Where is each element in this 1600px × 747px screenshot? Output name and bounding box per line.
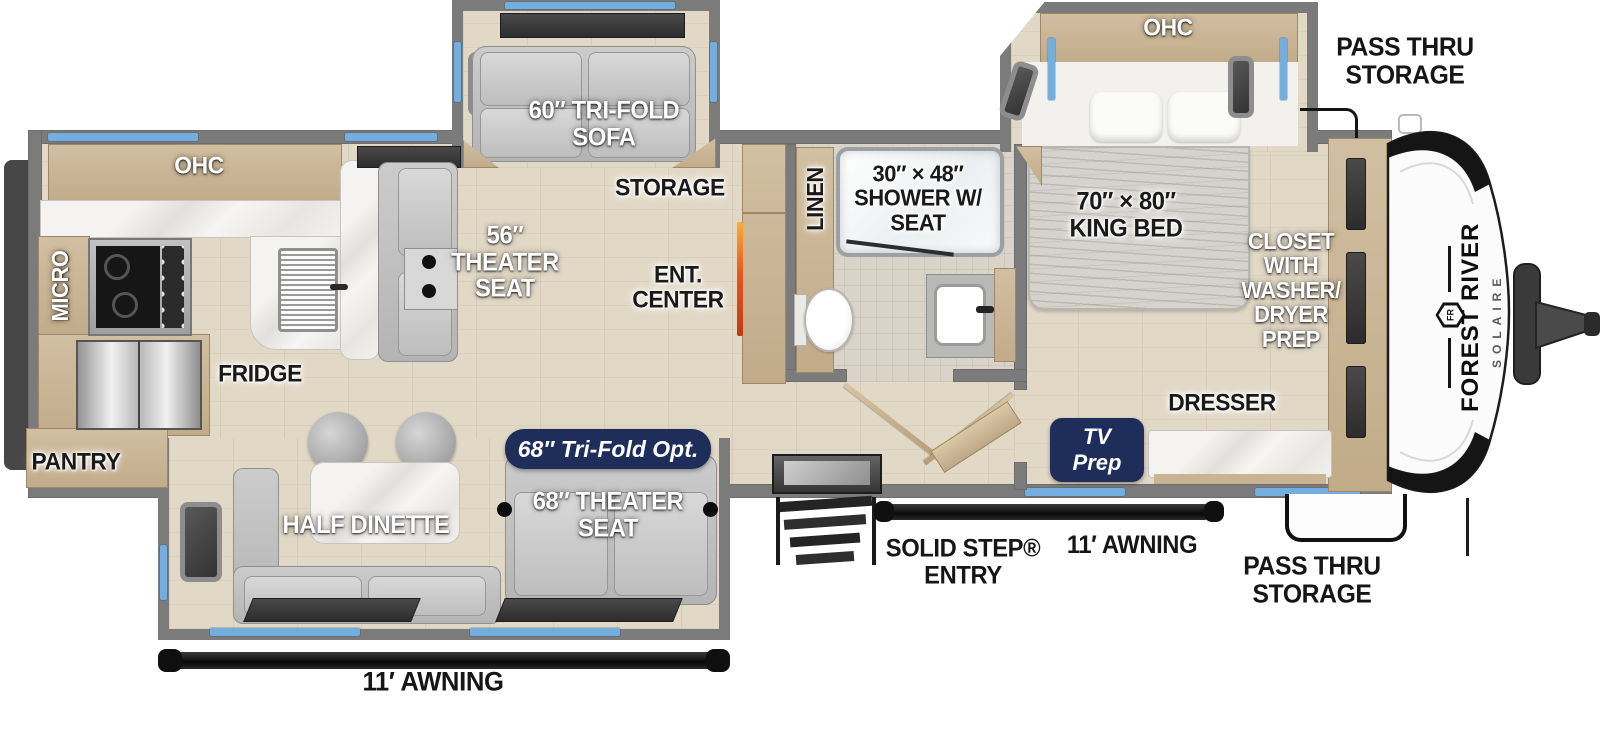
tri-fold-option-badge: 68″ Tri-Fold Opt.	[505, 429, 711, 469]
bath-vanity-panel	[994, 268, 1016, 362]
footrest	[495, 598, 683, 622]
bedroom-slide-window	[1228, 56, 1254, 118]
awning-end-cap	[158, 649, 182, 672]
sofa-tv	[500, 13, 685, 38]
window-strip	[160, 545, 167, 600]
label-dresser: DRESSER	[1168, 390, 1276, 415]
window-strip	[48, 133, 198, 141]
fridge-door-split	[138, 340, 140, 430]
awning-end-cap	[1204, 501, 1224, 522]
kitchen-sink	[278, 248, 338, 332]
closet-door-panel	[1346, 158, 1366, 230]
pillow	[1090, 92, 1162, 142]
tv-prep-text: TV Prep	[1073, 424, 1122, 477]
stove-burner	[104, 254, 130, 280]
window-strip	[454, 42, 461, 102]
brand-rule	[1448, 338, 1451, 388]
window-strip	[1025, 488, 1125, 496]
window-strip	[710, 42, 717, 102]
label-theater-68: 68″ THEATER SEAT	[533, 489, 684, 542]
label-fridge: FRIDGE	[218, 361, 302, 386]
bathroom-sink	[934, 284, 986, 346]
bath-wall-right-lower	[1014, 462, 1027, 490]
kitchen-faucet	[330, 284, 348, 290]
label-ent-center: ENT. CENTER	[632, 263, 723, 314]
stove-knob-panel	[162, 246, 184, 328]
bath-wall-bottom	[953, 369, 1027, 382]
toilet	[804, 288, 854, 352]
floorplan-canvas: FOREST RIVER SOLAIRE FR 68″ Tri-Fold Opt…	[0, 0, 1600, 747]
awning-end-cap	[706, 649, 730, 672]
ent-center-shelf-line	[742, 212, 786, 214]
label-ohc-bedroom: OHC	[1143, 15, 1193, 40]
bath-faucet	[976, 306, 994, 313]
fireplace-strip	[737, 222, 743, 336]
cupholder	[422, 255, 436, 269]
window-strip	[1048, 38, 1055, 100]
label-half-dinette: HALF DINETTE	[283, 512, 450, 539]
label-tri-fold-sofa: 60″ TRI-FOLD SOFA	[529, 98, 680, 151]
label-pantry: PANTRY	[32, 449, 121, 474]
label-awning-bottom: 11′ AWNING	[362, 668, 503, 697]
cupholder	[703, 502, 718, 517]
ent-center-cabinet	[742, 144, 786, 384]
window-strip	[1280, 38, 1287, 100]
label-pass-thru-storage-front: PASS THRU STORAGE	[1336, 33, 1473, 88]
footrest	[243, 598, 421, 622]
label-solid-step-entry: SOLID STEP® ENTRY	[886, 536, 1041, 589]
awning-bar-right	[882, 504, 1212, 520]
window-strip	[210, 628, 360, 636]
window-strip	[505, 2, 675, 9]
brand-solaire: SOLAIRE	[1488, 235, 1506, 405]
dinette-slide-window	[180, 502, 222, 582]
entry-steps	[776, 497, 876, 567]
dresser	[1148, 430, 1332, 478]
entry-door-glass	[784, 461, 870, 485]
rear-cap	[4, 160, 30, 470]
brand-rule	[1448, 246, 1451, 292]
cupholder	[422, 284, 436, 298]
label-micro: MICRO	[48, 251, 72, 322]
label-shower: 30″ × 48″ SHOWER W/ SEAT	[854, 161, 982, 234]
closet-door-panel	[1346, 366, 1366, 438]
awning-end-cap	[874, 501, 894, 522]
tri-fold-option-text: 68″ Tri-Fold Opt.	[518, 436, 699, 463]
label-king-bed: 70″ × 80″ KING BED	[1069, 189, 1182, 242]
theater-seat-56-cushion	[398, 168, 452, 256]
dresser-front	[1154, 474, 1326, 484]
stove-burner	[112, 292, 138, 318]
cupholder	[497, 502, 512, 517]
window-strip	[345, 133, 437, 141]
label-ohc-kitchen: OHC	[174, 153, 224, 178]
kitchen-counter	[40, 200, 342, 238]
island-side-panel	[340, 160, 380, 360]
label-storage: STORAGE	[615, 175, 725, 200]
label-closet: CLOSET WITH WASHER/ DRYER PREP	[1241, 229, 1340, 351]
window-strip	[470, 628, 620, 636]
closet-door-panel	[1346, 252, 1366, 344]
brand-monogram-text: FR	[1446, 309, 1456, 321]
label-awning-right: 11′ AWNING	[1067, 532, 1197, 559]
tv-prep-badge: TV Prep	[1050, 418, 1144, 482]
label-linen: LINEN	[803, 167, 827, 231]
label-theater-56: 56″ THEATER SEAT	[451, 222, 559, 302]
label-pass-thru-storage-rear: PASS THRU STORAGE	[1243, 552, 1380, 607]
